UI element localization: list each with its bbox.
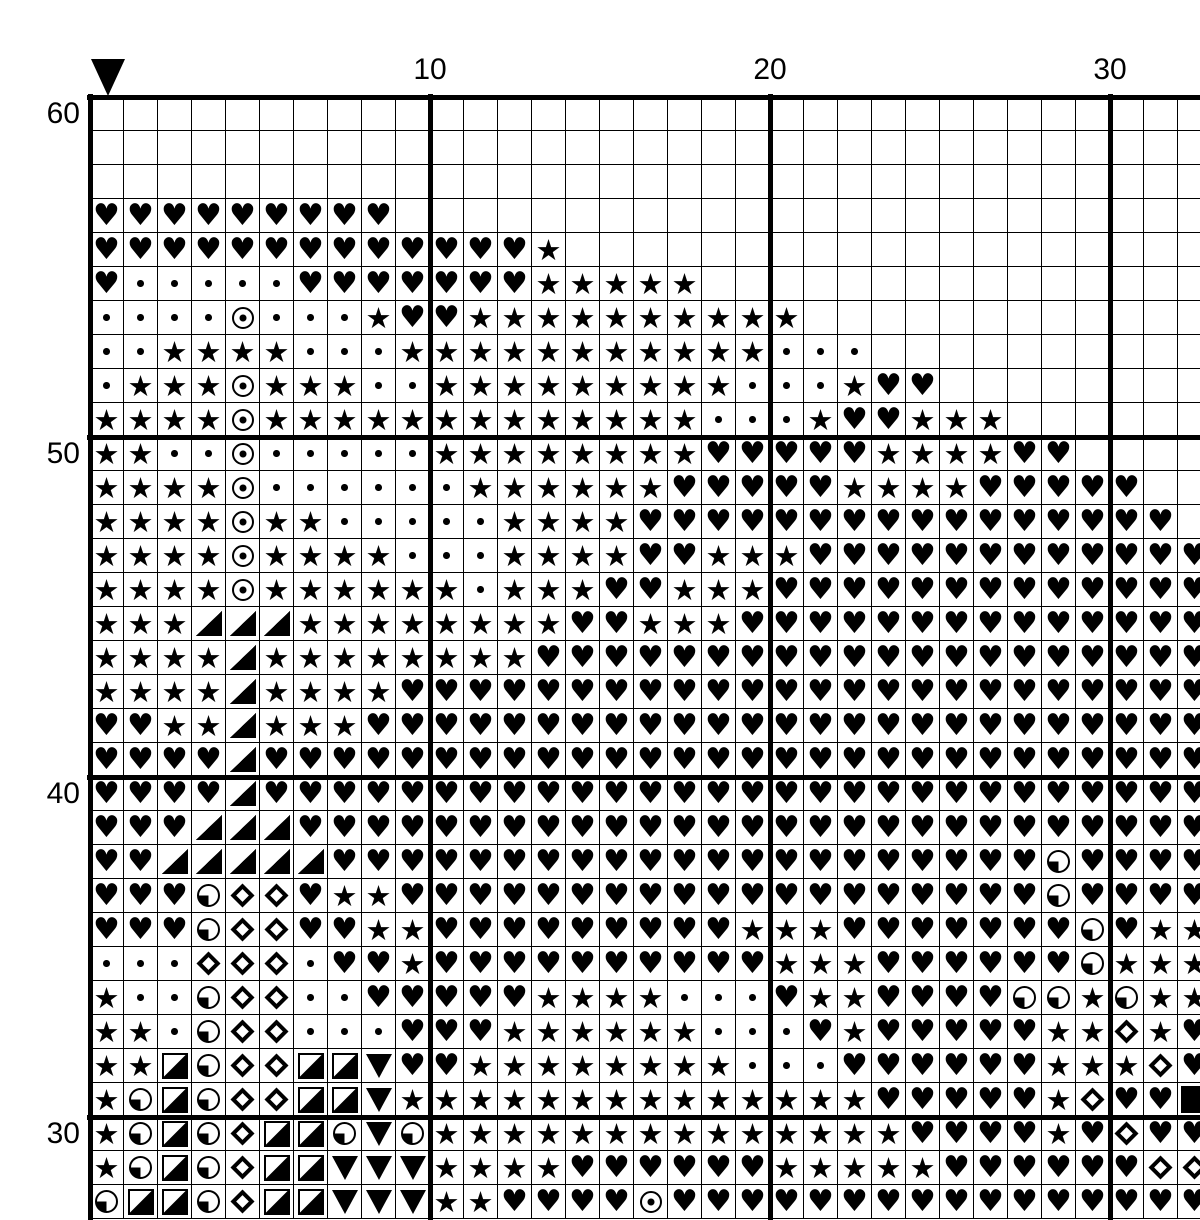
grid-cell: ★ (124, 369, 158, 403)
heart-icon: ♥ (1147, 743, 1174, 776)
grid-cell: ♥ (1008, 1049, 1042, 1083)
grid-cell: ♥ (464, 879, 498, 913)
star-icon: ★ (638, 369, 664, 403)
grid-cell: ♥ (634, 505, 668, 539)
heart-icon: ♥ (943, 743, 970, 776)
star-icon: ★ (536, 369, 562, 403)
grid-cell: ♥ (1008, 539, 1042, 573)
grid-cell (192, 845, 226, 879)
heart-icon: ♥ (1147, 777, 1174, 810)
grid-cell: ♥ (974, 811, 1008, 845)
grid-bold-line-horizontal (87, 1115, 1200, 1120)
grid-cell: ♥ (770, 845, 804, 879)
grid-cell: ♥ (804, 879, 838, 913)
heart-icon: ♥ (535, 675, 562, 708)
heart-icon: ♥ (161, 743, 188, 776)
grid-cell: ♥ (362, 811, 396, 845)
half-square-triangle-icon (230, 713, 256, 738)
small-dot-icon (137, 314, 144, 321)
heart-icon: ♥ (1011, 1015, 1038, 1048)
grid-cell (668, 233, 702, 267)
star-icon: ★ (128, 1049, 154, 1083)
grid-cell (260, 947, 294, 981)
grid-cell: ♥ (1178, 539, 1200, 573)
grid-cell (1144, 369, 1178, 403)
heart-icon: ♥ (1011, 777, 1038, 810)
heart-icon: ♥ (705, 1151, 732, 1184)
grid-cell: ♥ (974, 641, 1008, 675)
circled-dot-icon (232, 477, 254, 499)
grid-cell (226, 1083, 260, 1117)
grid-cell: ♥ (600, 1151, 634, 1185)
grid-cell: ♥ (804, 471, 838, 505)
grid-cell: ♥ (1178, 811, 1200, 845)
square-diagonal-half-icon (264, 1155, 290, 1181)
grid-cell: ★ (158, 369, 192, 403)
star-icon: ★ (1114, 1049, 1140, 1083)
heart-icon: ♥ (433, 301, 460, 334)
grid-cell: ♥ (532, 1185, 566, 1219)
star-icon: ★ (570, 471, 596, 505)
square-diagonal-half-icon (298, 1189, 324, 1215)
heart-icon: ♥ (909, 573, 936, 606)
grid-cell: ♥ (90, 199, 124, 233)
heart-icon: ♥ (943, 913, 970, 946)
grid-cell: ★ (736, 1117, 770, 1151)
grid-cell: ★ (328, 403, 362, 437)
star-icon: ★ (468, 1151, 494, 1185)
grid-cell: ★ (702, 369, 736, 403)
grid-cell (1076, 403, 1110, 437)
star-icon: ★ (94, 1117, 120, 1151)
grid-cell: ★ (362, 403, 396, 437)
star-icon: ★ (706, 539, 732, 573)
grid-cell: ♥ (974, 1015, 1008, 1049)
grid-cell: ♥ (90, 743, 124, 777)
heart-icon: ♥ (841, 743, 868, 776)
heart-icon: ♥ (603, 675, 630, 708)
grid-cell: ★ (566, 335, 600, 369)
star-icon: ★ (910, 403, 936, 437)
grid-cell: ★ (566, 1049, 600, 1083)
heart-icon: ♥ (705, 777, 732, 810)
small-dot-icon (749, 1062, 756, 1069)
circled-dot-icon (232, 409, 254, 431)
heart-icon: ♥ (1113, 573, 1140, 606)
grid-cell (226, 1185, 260, 1219)
grid-cell (1042, 879, 1076, 913)
star-icon: ★ (468, 641, 494, 675)
grid-cell: ♥ (872, 1185, 906, 1219)
grid-cell: ♥ (396, 1015, 430, 1049)
heart-icon: ♥ (1113, 641, 1140, 674)
grid-cell: ★ (600, 505, 634, 539)
star-icon: ★ (366, 641, 392, 675)
grid-cell: ★ (804, 947, 838, 981)
heart-icon: ♥ (1113, 539, 1140, 572)
grid-cell: ♥ (498, 675, 532, 709)
small-dot-icon (851, 348, 858, 355)
grid-cell (192, 437, 226, 471)
grid-cell: ♥ (1042, 607, 1076, 641)
heart-icon: ♥ (773, 743, 800, 776)
star-icon: ★ (468, 1049, 494, 1083)
heart-icon: ♥ (1011, 947, 1038, 980)
grid-cell (226, 437, 260, 471)
star-icon: ★ (128, 505, 154, 539)
grid-cell: ♥ (498, 267, 532, 301)
small-dot-icon (477, 552, 484, 559)
star-icon: ★ (774, 539, 800, 573)
heart-icon: ♥ (909, 1049, 936, 1082)
heart-icon: ♥ (841, 845, 868, 878)
grid-cell: ★ (498, 641, 532, 675)
down-triangle-icon (366, 1190, 392, 1214)
heart-icon: ♥ (1011, 1049, 1038, 1082)
star-icon: ★ (196, 403, 222, 437)
heart-icon: ♥ (841, 573, 868, 606)
star-icon: ★ (978, 403, 1004, 437)
grid-cell (1076, 199, 1110, 233)
heart-icon: ♥ (535, 777, 562, 810)
star-icon: ★ (536, 1015, 562, 1049)
star-icon: ★ (876, 1117, 902, 1151)
grid-cell: ★ (940, 471, 974, 505)
grid-cell: ★ (498, 1117, 532, 1151)
grid-cell: ♥ (600, 641, 634, 675)
grid-cell (804, 267, 838, 301)
grid-cell: ♥ (634, 777, 668, 811)
grid-cell: ♥ (940, 1015, 974, 1049)
small-dot-icon (341, 994, 348, 1001)
grid-cell: ★ (294, 675, 328, 709)
grid-cell (294, 1151, 328, 1185)
grid-cell: ♥ (804, 1185, 838, 1219)
grid-cell (838, 335, 872, 369)
star-icon: ★ (1114, 947, 1140, 981)
small-dot-icon (171, 1028, 178, 1035)
grid-cell: ♥ (1110, 1185, 1144, 1219)
grid-cell: ★ (804, 913, 838, 947)
grid-cell (226, 1117, 260, 1151)
small-dot-icon (103, 382, 110, 389)
half-square-triangle-icon (230, 679, 256, 704)
heart-icon: ♥ (1113, 743, 1140, 776)
grid-cell (940, 199, 974, 233)
heart-icon: ♥ (501, 845, 528, 878)
grid-cell (158, 1117, 192, 1151)
grid-cell: ♥ (736, 879, 770, 913)
heart-icon: ♥ (705, 879, 732, 912)
star-icon: ★ (366, 879, 392, 913)
grid-cell: ♥ (532, 675, 566, 709)
grid-cell: ♥ (1042, 539, 1076, 573)
diamond-outline-icon (264, 951, 288, 975)
heart-icon: ♥ (1011, 471, 1038, 504)
star-icon: ★ (162, 505, 188, 539)
grid-cell: ★ (260, 369, 294, 403)
star-icon: ★ (196, 709, 222, 743)
heart-icon: ♥ (807, 539, 834, 572)
grid-cell: ♥ (362, 743, 396, 777)
heart-icon: ♥ (875, 573, 902, 606)
grid-cell (464, 199, 498, 233)
grid-cell: ♥ (770, 641, 804, 675)
grid-cell: ♥ (532, 811, 566, 845)
heart-icon: ♥ (399, 845, 426, 878)
heart-icon: ♥ (93, 709, 120, 742)
grid-cell: ♥ (770, 811, 804, 845)
grid-cell: ★ (498, 505, 532, 539)
grid-cell: ★ (464, 369, 498, 403)
heart-icon: ♥ (93, 913, 120, 946)
grid-cell: ★ (668, 369, 702, 403)
star-icon: ★ (162, 403, 188, 437)
grid-cell (124, 947, 158, 981)
heart-icon: ♥ (705, 811, 732, 844)
star-icon: ★ (264, 641, 290, 675)
heart-icon: ♥ (977, 1185, 1004, 1218)
heart-icon: ♥ (1079, 675, 1106, 708)
grid-cell (124, 267, 158, 301)
star-icon: ★ (1148, 1015, 1174, 1049)
star-icon: ★ (672, 1015, 698, 1049)
heart-icon: ♥ (909, 675, 936, 708)
grid-cell: ♥ (1008, 641, 1042, 675)
grid-cell: ♥ (1178, 777, 1200, 811)
grid-cell: ♥ (1178, 675, 1200, 709)
grid-cell: ♥ (362, 199, 396, 233)
grid-cell: ★ (328, 607, 362, 641)
star-icon: ★ (672, 607, 698, 641)
heart-icon: ♥ (977, 1049, 1004, 1082)
grid-cell (192, 97, 226, 131)
star-icon: ★ (570, 369, 596, 403)
grid-cell: ★ (1042, 1117, 1076, 1151)
heart-icon: ♥ (501, 1185, 528, 1218)
half-square-triangle-icon (230, 815, 256, 840)
grid-cell: ★ (532, 335, 566, 369)
grid-cell (260, 1185, 294, 1219)
heart-icon: ♥ (637, 675, 664, 708)
grid-cell: ♥ (838, 1185, 872, 1219)
grid-cell: ♥ (702, 777, 736, 811)
small-dot-icon (409, 552, 416, 559)
heart-icon: ♥ (1011, 641, 1038, 674)
grid-cell: ♥ (124, 811, 158, 845)
star-icon: ★ (672, 369, 698, 403)
grid-cell: ★ (532, 573, 566, 607)
heart-icon: ♥ (161, 811, 188, 844)
grid-cell (1042, 335, 1076, 369)
star-icon: ★ (468, 301, 494, 335)
grid-cell: ★ (464, 335, 498, 369)
heart-icon: ♥ (1181, 777, 1200, 810)
grid-cell (396, 505, 430, 539)
grid-cell: ♥ (1110, 777, 1144, 811)
grid-cell (464, 505, 498, 539)
grid-cell: ♥ (974, 573, 1008, 607)
heart-icon: ♥ (1079, 641, 1106, 674)
heart-icon: ♥ (943, 1151, 970, 1184)
grid-cell (940, 369, 974, 403)
pattern-grid-area: ♥♥♥♥♥♥♥♥♥♥♥♥♥♥♥♥♥♥♥♥♥♥★♥♥♥♥♥♥♥♥★★★★★★♥♥★… (90, 97, 1200, 1219)
grid-cell: ♥ (260, 199, 294, 233)
heart-icon: ♥ (467, 709, 494, 742)
grid-cell: ♥ (1008, 947, 1042, 981)
star-icon: ★ (128, 539, 154, 573)
heart-icon: ♥ (909, 505, 936, 538)
grid-cell: ♥ (872, 641, 906, 675)
heart-icon: ♥ (1181, 1117, 1200, 1150)
grid-cell (90, 1185, 124, 1219)
star-icon: ★ (876, 471, 902, 505)
grid-cell: ♥ (838, 777, 872, 811)
grid-cell: ★ (702, 335, 736, 369)
heart-icon: ♥ (535, 947, 562, 980)
heart-icon: ♥ (807, 1185, 834, 1218)
grid-cell (226, 471, 260, 505)
grid-cell: ★ (1144, 1015, 1178, 1049)
small-dot-icon (341, 450, 348, 457)
star-icon: ★ (604, 1083, 630, 1117)
heart-icon: ♥ (467, 675, 494, 708)
grid-cell: ♥ (328, 811, 362, 845)
small-dot-icon (273, 450, 280, 457)
grid-cell (1076, 233, 1110, 267)
grid-cell: ♥ (464, 233, 498, 267)
grid-cell: ★ (838, 1015, 872, 1049)
diamond-outline-icon (1148, 1053, 1172, 1077)
heart-icon: ♥ (977, 777, 1004, 810)
heart-icon: ♥ (977, 913, 1004, 946)
heart-icon: ♥ (773, 981, 800, 1014)
star-icon: ★ (536, 1117, 562, 1151)
grid-cell (532, 165, 566, 199)
heart-icon: ♥ (841, 777, 868, 810)
grid-cell: ♥ (1008, 607, 1042, 641)
heart-icon: ♥ (1079, 777, 1106, 810)
heart-icon: ♥ (875, 403, 902, 436)
grid-cell: ★ (974, 437, 1008, 471)
star-icon: ★ (604, 981, 630, 1015)
grid-cell (362, 437, 396, 471)
heart-icon: ♥ (875, 743, 902, 776)
half-square-triangle-icon (230, 781, 256, 806)
star-icon: ★ (162, 709, 188, 743)
grid-cell: ♥ (940, 1117, 974, 1151)
grid-cell: ♥ (158, 743, 192, 777)
grid-cell (192, 267, 226, 301)
grid-cell: ♥ (294, 267, 328, 301)
grid-cell: ♥ (906, 743, 940, 777)
heart-icon: ♥ (467, 233, 494, 266)
grid-cell: ♥ (940, 811, 974, 845)
grid-cell (90, 165, 124, 199)
heart-icon: ♥ (977, 573, 1004, 606)
grid-cell (600, 131, 634, 165)
grid-cell: ♥ (158, 879, 192, 913)
heart-icon: ♥ (943, 1117, 970, 1150)
star-icon: ★ (196, 539, 222, 573)
small-dot-icon (443, 518, 450, 525)
heart-icon: ♥ (637, 879, 664, 912)
grid-cell (396, 1151, 430, 1185)
grid-cell: ♥ (124, 777, 158, 811)
heart-icon: ♥ (705, 913, 732, 946)
grid-cell (1042, 369, 1076, 403)
heart-icon: ♥ (909, 913, 936, 946)
grid-cell (192, 981, 226, 1015)
grid-cell: ♥ (906, 1185, 940, 1219)
grid-cell: ♥ (1144, 1185, 1178, 1219)
grid-cell: ★ (328, 641, 362, 675)
small-dot-icon (205, 280, 212, 287)
grid-cell: ♥ (736, 505, 770, 539)
star-icon: ★ (264, 505, 290, 539)
grid-cell: ★ (770, 1117, 804, 1151)
star-icon: ★ (638, 981, 664, 1015)
star-icon: ★ (400, 607, 426, 641)
grid-cell: ♥ (430, 1015, 464, 1049)
down-triangle-icon (332, 1156, 358, 1180)
heart-icon: ♥ (875, 1049, 902, 1082)
heart-icon: ♥ (501, 913, 528, 946)
heart-icon: ♥ (977, 981, 1004, 1014)
grid-cell: ♥ (906, 879, 940, 913)
heart-icon: ♥ (535, 913, 562, 946)
grid-cell: ★ (1110, 1049, 1144, 1083)
grid-cell: ★ (634, 1049, 668, 1083)
grid-cell: ★ (328, 369, 362, 403)
grid-cell (1110, 437, 1144, 471)
grid-cell: ★ (362, 675, 396, 709)
grid-cell: ★ (328, 539, 362, 573)
grid-cell: ♥ (328, 743, 362, 777)
grid-cell (770, 403, 804, 437)
grid-cell: ♥ (430, 675, 464, 709)
star-icon: ★ (1148, 981, 1174, 1015)
quarter-circle-lower-left-icon (401, 1122, 424, 1145)
grid-cell (192, 1015, 226, 1049)
heart-icon: ♥ (1045, 471, 1072, 504)
grid-bold-line-vertical (768, 94, 773, 1220)
star-icon: ★ (536, 267, 562, 301)
grid-cell: ♥ (1144, 845, 1178, 879)
heart-icon: ♥ (1113, 709, 1140, 742)
grid-cell (940, 131, 974, 165)
grid-cell (1144, 471, 1178, 505)
heart-icon: ♥ (467, 811, 494, 844)
heart-icon: ♥ (1011, 573, 1038, 606)
star-icon: ★ (536, 233, 562, 267)
star-icon: ★ (570, 301, 596, 335)
grid-cell (260, 1015, 294, 1049)
grid-cell (906, 97, 940, 131)
heart-icon: ♥ (773, 471, 800, 504)
heart-icon: ♥ (263, 777, 290, 810)
grid-cell: ♥ (124, 743, 158, 777)
star-icon: ★ (502, 1015, 528, 1049)
grid-cell: ★ (362, 539, 396, 573)
grid-cell: ★ (260, 641, 294, 675)
grid-cell (974, 97, 1008, 131)
grid-cell: ♥ (1076, 777, 1110, 811)
heart-icon: ♥ (943, 709, 970, 742)
grid-cell: ♥ (940, 879, 974, 913)
grid-cell (124, 1083, 158, 1117)
grid-cell: ♥ (634, 641, 668, 675)
